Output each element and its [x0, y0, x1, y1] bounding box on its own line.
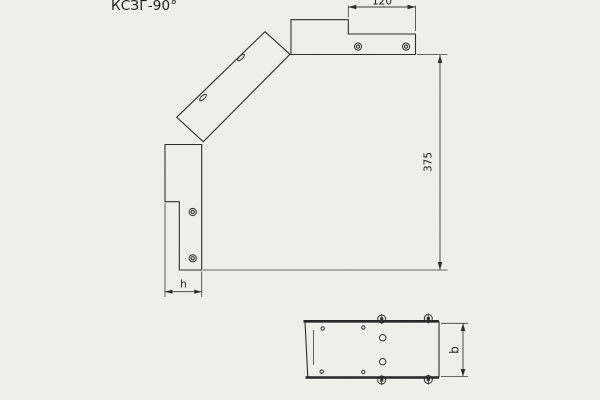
dim-120-label: 120 — [372, 0, 392, 8]
paper-grain-texture — [0, 0, 600, 400]
drawing-title: КСЗГ-90° — [111, 0, 177, 14]
dim-375-label: 375 — [423, 152, 435, 172]
dim-h-label: h — [180, 279, 187, 291]
technical-drawing-canvas: КСЗГ-90° — [0, 0, 600, 400]
drawing-page: { "drawing": { "title": "КСЗГ-90°", "mai… — [0, 0, 600, 400]
dim-b-label: b — [448, 346, 462, 354]
